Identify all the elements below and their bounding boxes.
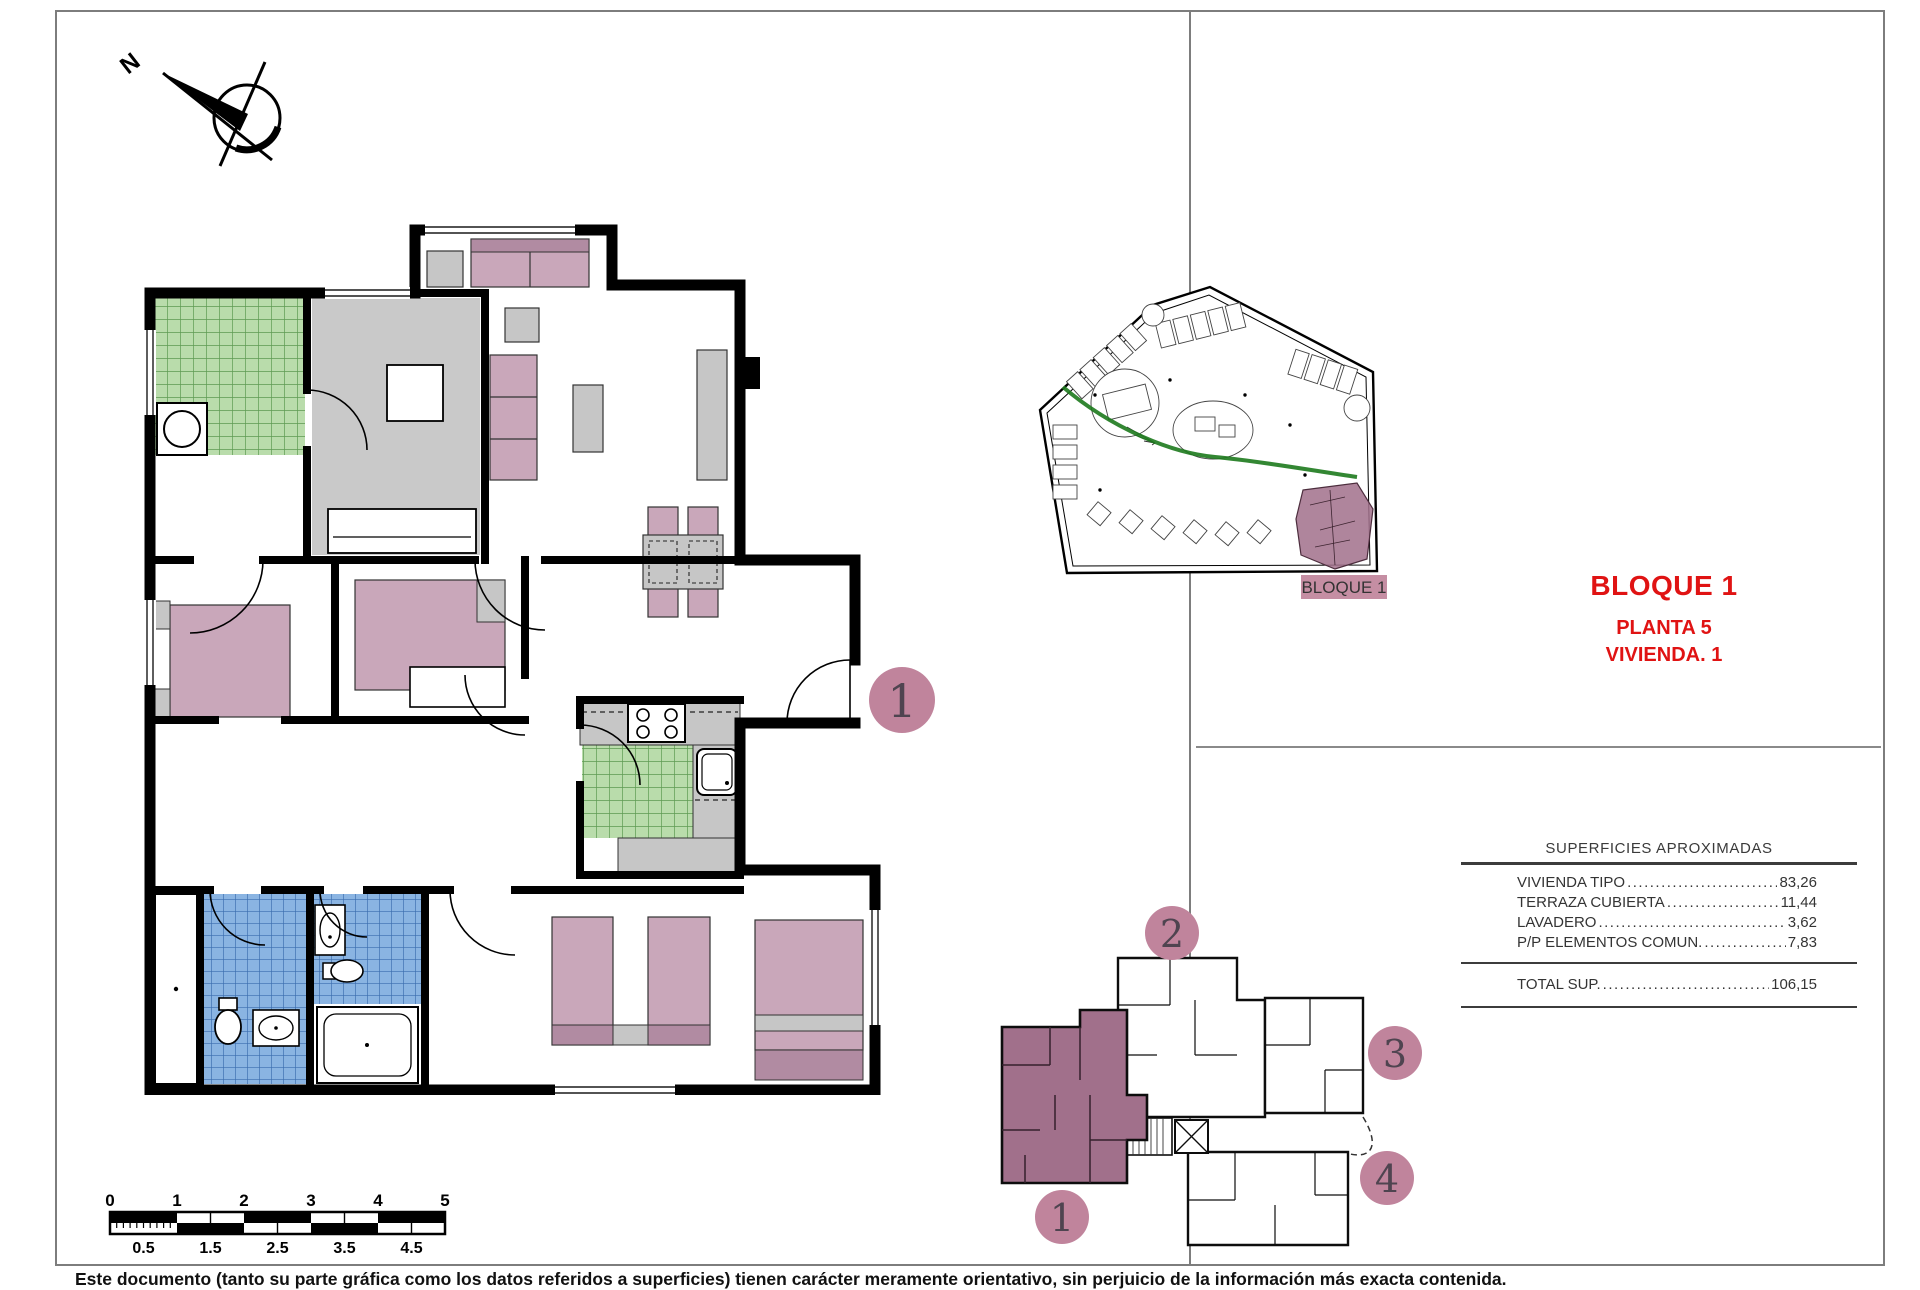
surfaces-table: SUPERFICIES APROXIMADAS VIVIENDA TIPO83,… bbox=[1461, 840, 1857, 1008]
site-block-label-text: BLOQUE 1 bbox=[1301, 578, 1386, 597]
site-block-label: BLOQUE 1 bbox=[1301, 575, 1387, 599]
plan-sheet: N bbox=[0, 0, 1920, 1280]
washing-machine bbox=[157, 403, 207, 455]
main-floor-plan: 1 bbox=[115, 215, 970, 1095]
svg-text:3: 3 bbox=[1383, 1032, 1407, 1076]
surface-row: LAVADERO3,62 bbox=[1461, 914, 1857, 934]
title-block: BLOQUE 1 PLANTA 5 VIVIENDA. 1 bbox=[1504, 570, 1824, 667]
sideboard bbox=[697, 350, 727, 480]
key-plan: 2 3 4 1 bbox=[995, 905, 1430, 1275]
title-panel-rule bbox=[1196, 746, 1881, 748]
svg-text:1.5: 1.5 bbox=[199, 1240, 221, 1257]
north-arrow: N bbox=[90, 30, 300, 180]
terrace-seat bbox=[755, 920, 863, 1080]
tv-stand bbox=[427, 251, 463, 287]
armchair bbox=[573, 385, 603, 452]
compass-needle bbox=[163, 73, 248, 131]
svg-text:1: 1 bbox=[1050, 1196, 1074, 1240]
title-bloque: BLOQUE 1 bbox=[1504, 570, 1824, 602]
unit-marker-digit: 1 bbox=[887, 674, 916, 728]
sofa-top bbox=[471, 239, 589, 287]
svg-text:0: 0 bbox=[105, 1191, 114, 1210]
title-planta: PLANTA 5 bbox=[1504, 617, 1824, 640]
key-marker-1: 1 bbox=[1035, 1190, 1089, 1244]
surfaces-header: SUPERFICIES APROXIMADAS bbox=[1461, 840, 1857, 857]
svg-text:5: 5 bbox=[440, 1191, 449, 1210]
unit-marker: 1 bbox=[869, 667, 935, 733]
surfaces-rule-bottom bbox=[1461, 1006, 1857, 1008]
side-table bbox=[505, 308, 539, 342]
scale-bar-strip bbox=[110, 1212, 445, 1234]
svg-text:2.5: 2.5 bbox=[266, 1240, 288, 1257]
svg-text:4.5: 4.5 bbox=[400, 1240, 422, 1257]
key-unit-2 bbox=[1118, 958, 1265, 1117]
key-unit-4 bbox=[1188, 1152, 1348, 1245]
bedroom2-bed bbox=[155, 601, 290, 717]
title-vivienda: VIVIENDA. 1 bbox=[1504, 644, 1824, 667]
surface-row: P/P ELEMENTOS COMUN.7,83 bbox=[1461, 934, 1857, 954]
north-label: N bbox=[115, 48, 145, 80]
sofa-side bbox=[490, 355, 537, 480]
svg-text:2: 2 bbox=[239, 1191, 248, 1210]
svg-text:2: 2 bbox=[1160, 912, 1184, 956]
key-marker-4: 4 bbox=[1360, 1151, 1414, 1205]
key-unit-1-highlighted bbox=[1002, 1010, 1147, 1183]
bedroom3-bench bbox=[410, 667, 505, 707]
svg-text:1: 1 bbox=[172, 1191, 181, 1210]
surface-row: TERRAZA CUBIERTA11,44 bbox=[1461, 894, 1857, 914]
svg-text:4: 4 bbox=[373, 1191, 383, 1210]
key-marker-3: 3 bbox=[1368, 1026, 1422, 1080]
scale-minor-labels: 0.5 1.5 2.5 3.5 4.5 bbox=[132, 1240, 422, 1257]
surfaces-total-row: TOTAL SUP.106,15 bbox=[1461, 976, 1857, 996]
scale-bar: 0 1 2 3 4 5 0.5 1.5 2.5 3.5 4.5 bbox=[90, 1182, 480, 1267]
kitchen-floor bbox=[582, 745, 693, 838]
wall-pillar bbox=[743, 357, 760, 389]
key-unit-3 bbox=[1265, 998, 1363, 1113]
svg-text:3.5: 3.5 bbox=[333, 1240, 355, 1257]
key-marker-2: 2 bbox=[1145, 906, 1199, 960]
surface-row: VIVIENDA TIPO83,26 bbox=[1461, 874, 1857, 894]
site-plan: BLOQUE 1 bbox=[1005, 275, 1400, 610]
stove bbox=[628, 704, 685, 742]
key-dashed-boundary bbox=[1350, 1117, 1372, 1155]
svg-text:0.5: 0.5 bbox=[132, 1240, 154, 1257]
bedroom1-table bbox=[387, 365, 443, 421]
scale-major-labels: 0 1 2 3 4 5 bbox=[105, 1191, 449, 1210]
bathroom1-floor bbox=[204, 894, 306, 1084]
svg-text:3: 3 bbox=[306, 1191, 315, 1210]
svg-text:4: 4 bbox=[1375, 1157, 1399, 1201]
bedroom4-beds bbox=[552, 917, 710, 1045]
bedroom1-bench bbox=[328, 509, 476, 553]
kitchen-sink bbox=[697, 749, 737, 795]
compass-arc bbox=[236, 127, 278, 150]
